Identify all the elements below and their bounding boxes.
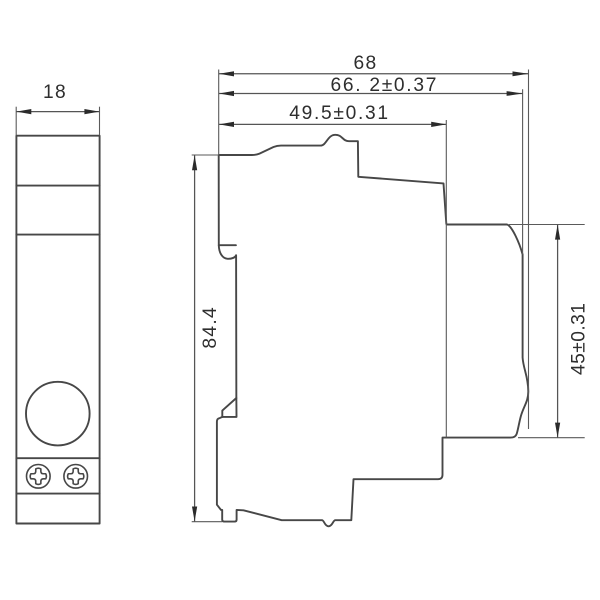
svg-text:49.5±0.31: 49.5±0.31 (289, 103, 390, 124)
svg-text:84.4: 84.4 (200, 306, 221, 349)
svg-text:18: 18 (43, 82, 67, 103)
svg-text:45±0.31: 45±0.31 (569, 303, 590, 375)
svg-text:66. 2±0.37: 66. 2±0.37 (331, 75, 439, 96)
svg-text:68: 68 (354, 53, 378, 74)
